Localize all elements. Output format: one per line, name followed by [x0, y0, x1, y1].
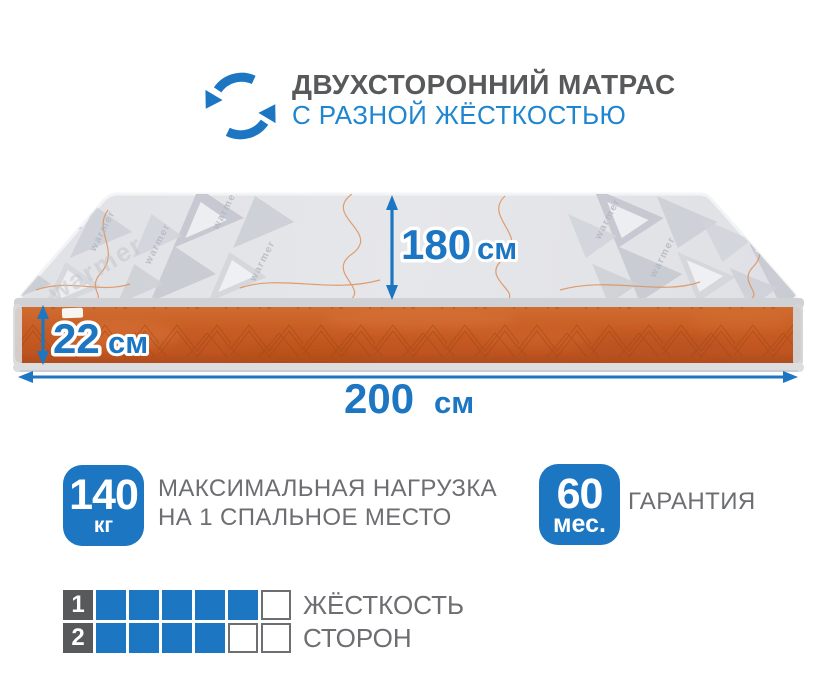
width-value: 200: [344, 375, 414, 422]
length-unit: см: [477, 231, 517, 266]
rating-cell-filled: [129, 623, 159, 653]
svg-text:warmer: warmer: [737, 189, 767, 235]
max-load-label-line2: НА 1 СПАЛЬНОЕ МЕСТО: [158, 503, 497, 532]
width-unit: см: [434, 385, 474, 420]
warranty-unit: мес.: [553, 514, 606, 535]
rotate-arrows-icon: [197, 62, 285, 150]
rating-cell-filled: [162, 623, 192, 653]
rating-cell-filled: [162, 590, 192, 620]
rating-row: 1: [63, 590, 291, 620]
page-subtitle: С РАЗНОЙ ЖЁСТКОСТЬЮ: [292, 100, 676, 130]
rating-cell-filled: [195, 623, 225, 653]
max-load-label-line1: МАКСИМАЛЬНАЯ НАГРУЗКА: [158, 474, 497, 503]
rating-row: 2: [63, 623, 291, 653]
max-load-label: МАКСИМАЛЬНАЯ НАГРУЗКА НА 1 СПАЛЬНОЕ МЕСТ…: [158, 474, 497, 532]
mattress-top-piping: [14, 298, 804, 308]
height-value: 22: [53, 315, 100, 362]
rating-row-number: 2: [63, 623, 93, 653]
ratings-label-line1: ЖЁСТКОСТЬ: [303, 590, 464, 620]
rating-cell-filled: [96, 590, 126, 620]
mattress-infographic: ДВУХСТОРОННИЙ МАТРАС С РАЗНОЙ ЖЁСТКОСТЬЮ: [0, 0, 816, 700]
rating-cell-empty: [261, 590, 291, 620]
warranty-badge: 60 мес.: [539, 464, 620, 545]
mattress-illustration: warmer warmer warmer warmer warmer warme…: [0, 170, 816, 430]
page-title: ДВУХСТОРОННИЙ МАТРАС: [292, 70, 676, 100]
rating-cell-filled: [195, 590, 225, 620]
length-value: 180: [401, 221, 471, 268]
header-text: ДВУХСТОРОННИЙ МАТРАС С РАЗНОЙ ЖЁСТКОСТЬЮ: [292, 70, 676, 130]
rating-cell-empty: [261, 623, 291, 653]
max-load-value: 140: [69, 475, 138, 515]
rating-row-number: 1: [63, 590, 93, 620]
height-unit: см: [108, 325, 148, 360]
max-load-unit: кг: [94, 515, 113, 536]
rating-cell-filled: [96, 623, 126, 653]
rating-cell-filled: [129, 590, 159, 620]
max-load-badge: 140 кг: [63, 465, 144, 546]
rating-cell-empty: [228, 623, 258, 653]
ratings-label-line2: СТОРОН: [303, 623, 412, 653]
warranty-value: 60: [557, 474, 603, 514]
ratings-rows: 12: [63, 590, 291, 656]
warranty-label: ГАРАНТИЯ: [628, 487, 756, 516]
rating-cell-filled: [228, 590, 258, 620]
